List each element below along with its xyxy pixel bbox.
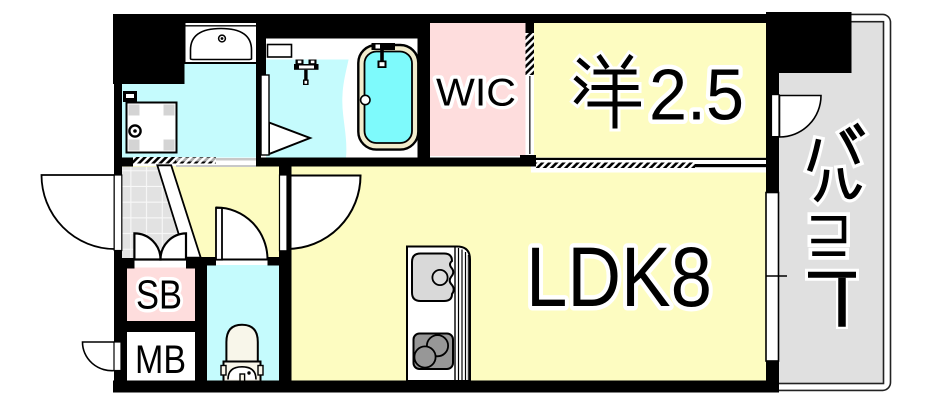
- svg-text:LDK8: LDK8: [526, 230, 712, 324]
- svg-text:SB: SB: [136, 272, 182, 318]
- svg-text:WIC: WIC: [436, 72, 516, 115]
- svg-text:MB: MB: [135, 338, 186, 382]
- svg-text:2.5: 2.5: [649, 56, 744, 136]
